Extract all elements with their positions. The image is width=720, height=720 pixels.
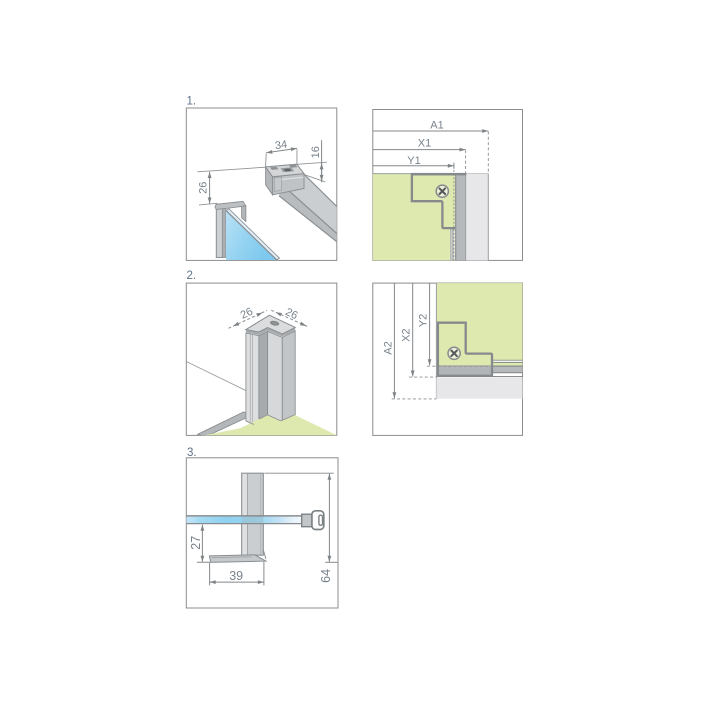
svg-text:34: 34	[274, 139, 288, 153]
svg-text:3.: 3.	[187, 447, 197, 459]
svg-text:64: 64	[319, 569, 333, 583]
svg-text:A2: A2	[382, 341, 394, 354]
svg-text:X1: X1	[418, 137, 431, 149]
svg-text:26: 26	[239, 306, 255, 322]
svg-text:26: 26	[283, 306, 299, 322]
svg-text:1.: 1.	[187, 95, 197, 107]
svg-text:16: 16	[310, 146, 322, 158]
svg-text:A1: A1	[430, 120, 443, 132]
svg-text:39: 39	[229, 569, 243, 583]
svg-text:Y1: Y1	[407, 155, 420, 167]
svg-text:27: 27	[189, 536, 203, 550]
svg-text:Y2: Y2	[418, 314, 430, 327]
svg-text:26: 26	[197, 182, 209, 194]
svg-text:X2: X2	[401, 328, 413, 341]
svg-text:2.: 2.	[187, 270, 197, 282]
